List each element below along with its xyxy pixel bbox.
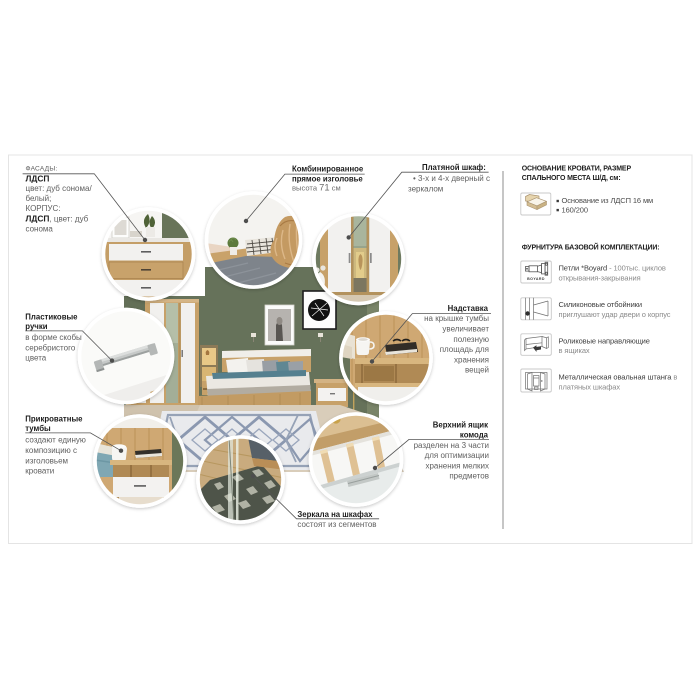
svg-text:для оптимизации: для оптимизации xyxy=(425,451,489,460)
svg-text:Комбинированное: Комбинированное xyxy=(292,165,364,174)
svg-text:вещей: вещей xyxy=(465,366,489,375)
svg-text:СПАЛЬНОГО МЕСТА Ш/Д, см:: СПАЛЬНОГО МЕСТА Ш/Д, см: xyxy=(522,175,621,182)
svg-text:хранения: хранения xyxy=(454,355,489,364)
svg-text:ФУРНИТУРА БАЗОВОЙ КОМПЛЕКТАЦИИ: ФУРНИТУРА БАЗОВОЙ КОМПЛЕКТАЦИИ: xyxy=(522,243,660,252)
svg-text:ОСНОВАНИЕ КРОВАТИ, РАЗМЕР: ОСНОВАНИЕ КРОВАТИ, РАЗМЕР xyxy=(522,165,632,172)
svg-text:BOYARD: BOYARD xyxy=(527,277,545,281)
svg-text:Основание из ЛДСП 16 мм: Основание из ЛДСП 16 мм xyxy=(562,196,654,205)
svg-text:КОРПУС:: КОРПУС: xyxy=(26,204,61,213)
svg-text:Пластиковые: Пластиковые xyxy=(25,312,78,321)
svg-text:увеличивает: увеличивает xyxy=(442,325,489,334)
svg-text:Платяной шкаф:: Платяной шкаф: xyxy=(422,163,486,172)
svg-text:кровати: кровати xyxy=(25,467,54,476)
svg-text:в форме скобы: в форме скобы xyxy=(25,333,82,342)
svg-text:площадь для: площадь для xyxy=(440,345,489,354)
svg-text:ручки: ручки xyxy=(25,322,47,331)
svg-text:Надставка: Надставка xyxy=(448,304,489,313)
svg-text:в ящиках: в ящиках xyxy=(559,346,590,355)
svg-text:комода: комода xyxy=(460,430,489,439)
svg-text:Роликовые направляющие: Роликовые направляющие xyxy=(559,336,650,345)
svg-text:160/200: 160/200 xyxy=(562,205,588,214)
svg-text:ФАСАДЫ:: ФАСАДЫ: xyxy=(26,166,58,173)
svg-text:композицию с: композицию с xyxy=(25,446,77,455)
svg-text:Прикроватные: Прикроватные xyxy=(25,414,83,423)
svg-text:Верхний ящик: Верхний ящик xyxy=(433,420,488,429)
svg-text:Силиконовые отбойники: Силиконовые отбойники xyxy=(559,300,642,309)
svg-text:разделен на 3 части: разделен на 3 части xyxy=(414,441,489,450)
svg-text:платяных шкафах: платяных шкафах xyxy=(559,382,621,391)
svg-text:Петли *Boyard - 100тыс. циклов: Петли *Boyard - 100тыс. циклов xyxy=(559,264,666,273)
svg-text:ЛДСП: ЛДСП xyxy=(26,174,50,184)
svg-text:хранения мелких: хранения мелких xyxy=(425,461,489,470)
svg-text:изголовьем: изголовьем xyxy=(25,456,68,465)
svg-text:состоят из сегментов: состоят из сегментов xyxy=(297,520,376,529)
svg-text:высота 71 см: высота 71 см xyxy=(292,181,341,192)
svg-text:предметов: предметов xyxy=(449,472,489,481)
svg-text:белый;: белый; xyxy=(26,194,52,203)
svg-text:зеркалом: зеркалом xyxy=(408,185,443,194)
svg-text:• 3-х и 4-х дверный с: • 3-х и 4-х дверный с xyxy=(413,174,490,183)
svg-text:цвет: дуб сонома/: цвет: дуб сонома/ xyxy=(26,184,93,193)
svg-text:Металлическая овальная штанга: Металлическая овальная штанга в xyxy=(559,373,678,382)
svg-text:серебристого: серебристого xyxy=(25,343,76,352)
svg-text:полезную: полезную xyxy=(453,335,489,344)
svg-text:тумбы: тумбы xyxy=(25,424,51,433)
svg-text:ЛДСП, цвет: дуб: ЛДСП, цвет: дуб xyxy=(26,213,89,223)
svg-text:на крышке тумбы: на крышке тумбы xyxy=(424,314,489,323)
svg-text:Зеркала на шкафах: Зеркала на шкафах xyxy=(297,510,373,519)
svg-text:приглушают удар двери о корпус: приглушают удар двери о корпус xyxy=(559,310,671,319)
svg-text:создают единую: создают единую xyxy=(25,436,86,445)
svg-text:цвета: цвета xyxy=(25,354,47,363)
svg-text:открывания-закрывания: открывания-закрывания xyxy=(559,274,641,283)
svg-text:сонома: сонома xyxy=(26,225,54,234)
